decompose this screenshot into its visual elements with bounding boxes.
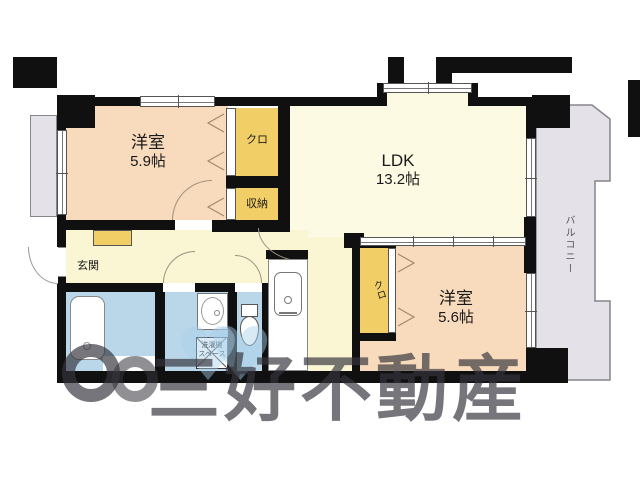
wall-left-1 (57, 106, 66, 132)
bath-entry-step (103, 356, 155, 371)
window-bay-ldk (383, 83, 472, 93)
bedroom-2-label: 洋室 5.6帖 (408, 288, 504, 328)
folding-door-icon (396, 252, 418, 274)
wall-top-a (57, 97, 140, 106)
neighbor-strip-right (628, 80, 640, 137)
wall-corner-top-right (532, 95, 570, 128)
wall-corridor-lower (352, 338, 360, 371)
room-name: LDK (348, 150, 448, 171)
bay-window-floor (387, 92, 468, 106)
wall-closet2-bottom (352, 333, 396, 341)
window-bedroom2 (526, 273, 536, 348)
storage-label: 収納 (236, 198, 278, 212)
wall-closet-divider (226, 176, 278, 188)
laundry-space-label: 洗濯機 スペース (195, 342, 229, 360)
shoe-cabinet (93, 230, 132, 246)
ldk-label: LDK 13.2帖 (348, 150, 448, 190)
wall-bath-wash (155, 292, 165, 371)
storage-door (226, 188, 236, 220)
bathtub-drain (83, 342, 91, 350)
balcony-door-ldk (526, 138, 536, 217)
washbasin-bowl (201, 297, 224, 325)
wall-top-b (215, 97, 377, 106)
wall-hall-wet-b (195, 283, 235, 292)
room-name: 洋室 (100, 132, 196, 153)
toilet-door-gap (235, 283, 262, 292)
closet-top-door (226, 108, 236, 176)
neighbor-block-top-left (13, 57, 57, 88)
side-alcove (30, 115, 57, 217)
wall-room1-bottom-a (57, 220, 175, 230)
bedroom-1-label: 洋室 5.9帖 (100, 132, 196, 172)
closet-side-door (388, 248, 396, 333)
wall-closet-right (278, 106, 290, 232)
wall-right-3 (526, 348, 536, 373)
bedroom1-door-gap (175, 220, 212, 230)
washbasin-faucet (214, 310, 220, 316)
wall-wash-toilet (228, 292, 237, 371)
wall-corridor-closet (352, 237, 360, 338)
bathtub (70, 296, 105, 360)
wall-bottom (57, 371, 535, 383)
entrance-label: 玄関 (66, 260, 110, 274)
room-size: 5.6帖 (408, 309, 504, 328)
folding-door-icon (204, 196, 226, 218)
washroom-door-gap (163, 283, 195, 292)
window-bedroom1 (140, 96, 215, 107)
wall-hall-wet-a (57, 283, 163, 292)
balcony-label: バルコニー (558, 202, 574, 287)
entrance-door-gap (57, 247, 66, 277)
room-size: 13.2帖 (348, 171, 448, 190)
wall-top-c (478, 97, 535, 106)
neighbor-bar-top (452, 57, 572, 73)
kitchen-faucet (284, 296, 292, 304)
floor-plan: 洗濯機 スペース 洋室 5.9帖 LDK 13.2帖 洋室 5.6帖 クロ 収納… (0, 0, 640, 480)
sliding-partition (360, 237, 526, 246)
kitchen-sink-bar (279, 312, 297, 314)
kitchen-sink (274, 272, 302, 316)
room-name: 洋室 (408, 288, 504, 309)
room-size: 5.9帖 (100, 153, 196, 172)
window-side-alcove (57, 130, 67, 215)
wall-right-1 (526, 106, 536, 138)
folding-door-icon (204, 150, 226, 172)
closet-top-label: クロ (236, 134, 278, 148)
folding-door-icon (204, 112, 226, 134)
